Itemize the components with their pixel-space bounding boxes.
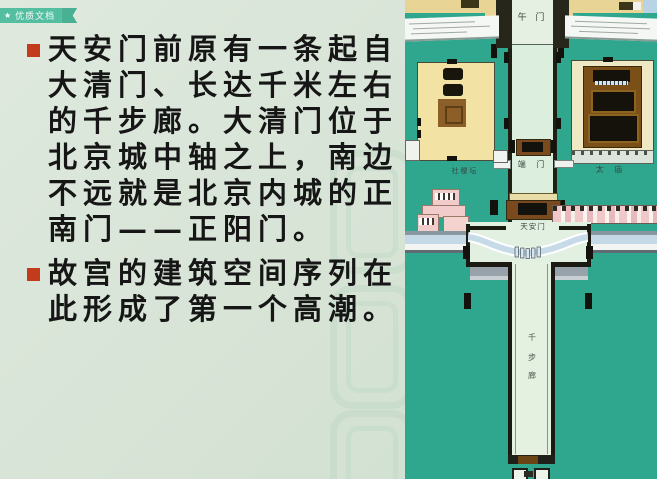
- corner-road: [555, 267, 588, 276]
- compound-gate-mark: [603, 57, 613, 62]
- text-line: 的千步廊。大清门位于: [48, 103, 398, 139]
- wall-detail: [633, 2, 641, 10]
- caption-panel-left: [405, 15, 499, 41]
- west-side-gate: [493, 150, 508, 163]
- qianbulang-label-char: 廊: [526, 370, 538, 381]
- golden-water-bridges: [515, 247, 541, 259]
- text-line: 天安门前原有一条起自: [48, 31, 398, 67]
- shejitan-hall: [443, 84, 463, 96]
- quality-doc-badge[interactable]: ★ 优质文档: [0, 8, 77, 23]
- daqingmen-wing: [534, 468, 550, 479]
- corner-road: [470, 276, 508, 280]
- text-line: 不远就是北京内城的正: [48, 175, 398, 211]
- plaza-gate-mark: [464, 293, 471, 309]
- caption-panel-right: [565, 15, 657, 41]
- badge-band: ★ 优质文档: [0, 8, 61, 23]
- plaza-gate-mark: [586, 246, 593, 259]
- edge-structure: [405, 140, 420, 161]
- bullet-marker: [27, 268, 40, 281]
- plaza-gate-mark: [463, 246, 470, 259]
- badge-ribbon-tail: [61, 8, 77, 23]
- east-connector-path: [554, 160, 574, 168]
- daqingmen-center: [524, 471, 533, 477]
- duanmen-flank: [509, 140, 515, 153]
- star-icon: ★: [4, 11, 12, 20]
- wall-building: [461, 0, 479, 8]
- avenue-west: [405, 231, 466, 252]
- tiananmen-flank: [490, 200, 498, 215]
- tiananmen-gate-hall: [518, 203, 547, 215]
- building-windows: [419, 218, 434, 225]
- badge-label: 优质文档: [15, 9, 55, 22]
- taimiao-crenellated-wall: [571, 150, 654, 164]
- bullet-marker: [27, 44, 40, 57]
- plaza-gate-mark: [585, 293, 592, 309]
- text-line: 此形成了第一个高潮。: [48, 291, 398, 327]
- corner-road: [555, 276, 588, 280]
- text-line: 大清门、长达千米左右: [48, 67, 398, 103]
- taimiao-main-hall: [588, 114, 639, 143]
- compound-gate-mark: [447, 156, 457, 161]
- gate-tick: [417, 118, 421, 126]
- wall-detail: [643, 0, 657, 13]
- slide: ★ 优质文档 天安门前原有一条起自 大清门、长达千米左右 的千步廊。大清门位于 …: [0, 0, 657, 479]
- duanmen-gate-hall: [522, 142, 543, 152]
- text-line: 南门——正阳门。: [48, 211, 398, 247]
- shejitan-label: 社稷坛: [443, 166, 487, 176]
- paragraph-gugong: 故宫的建筑空间序列在 此形成了第一个高潮。: [48, 255, 398, 327]
- shejitan-hall: [443, 68, 463, 80]
- tiananmen-label: 天安门: [513, 221, 553, 232]
- taimiao-hall: [591, 90, 636, 113]
- watermark-motif: [330, 410, 414, 479]
- taimiao-hall-steps: [595, 81, 628, 85]
- daqingmen-hall: [518, 456, 538, 464]
- gate-tick: [504, 52, 509, 63]
- gate-tick: [556, 118, 561, 129]
- corner-road: [470, 267, 508, 276]
- duanmen-label: 端 门: [509, 159, 557, 170]
- corridor-line: [515, 264, 516, 454]
- text-line: 北京城中轴之上，南边: [48, 139, 398, 175]
- corridor-line: [547, 264, 548, 454]
- taimiao-label: 太 庙: [589, 164, 633, 175]
- golden-water-river: [468, 230, 588, 264]
- qianbulang-label-char: 步: [526, 352, 538, 363]
- gate-tick: [417, 130, 421, 138]
- wumen-label: 午 门: [512, 10, 553, 23]
- compound-gate-mark: [447, 59, 457, 64]
- shejitan-altar-inner: [445, 106, 463, 124]
- qianbulang-label-char: 千: [526, 332, 538, 343]
- forbidden-city-plan-image: 午 门 社稷坛 太 庙: [405, 0, 657, 479]
- avenue-east: [591, 231, 657, 252]
- east-building-row-windows: [553, 206, 656, 211]
- paragraph-tiananmen: 天安门前原有一条起自 大清门、长达千米左右 的千步廊。大清门位于 北京城中轴之上…: [48, 31, 398, 247]
- building-windows: [435, 193, 455, 200]
- gate-tick: [504, 118, 509, 129]
- text-line: 故宫的建筑空间序列在: [48, 255, 398, 291]
